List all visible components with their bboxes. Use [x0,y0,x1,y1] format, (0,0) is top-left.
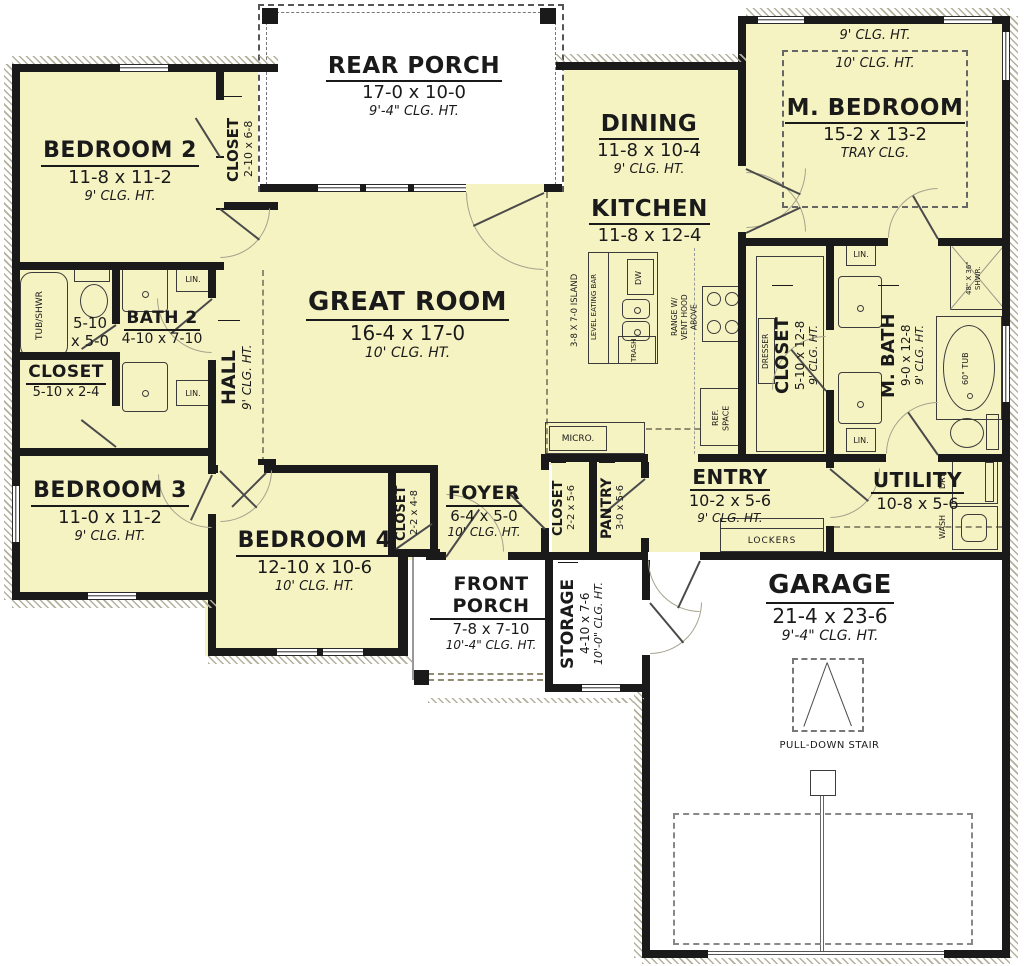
label-m-bedroom: 10' CLG. HT. M. BEDROOM 15-2 x 13-2 TRAY… [782,56,968,162]
window [582,684,620,692]
room-clg: 9' CLG. HT. [913,285,926,425]
room-clg: 9' CLG. HT. [75,529,146,545]
floor-plan: TUB/SHWR LIN. LIN. LEVEL EATING BAR DW 3… [0,0,1024,966]
window [758,16,804,24]
room-dim: 12-10 x 10-6 [257,557,372,579]
island-sink [622,299,650,319]
range-label: RANGE W/VENT HOODABOVE [670,284,700,350]
door-opening [738,166,746,232]
label-storage: STORAGE 4-10 x 7-6 10'-0" CLG. HT. [558,562,630,684]
toilet [950,418,984,448]
exterior-hatch [556,54,746,62]
room-dim: 10-8 x 5-6 [876,494,958,514]
garage-door-outline [673,813,973,945]
exterior-hatch [4,64,12,600]
room-dim: 15-2 x 13-2 [823,124,927,146]
dishwasher: DW [627,259,654,295]
room-clg: 9'-4" CLG. HT. [369,104,459,120]
room-name: ENTRY [690,465,769,491]
exterior-hatch [746,8,1010,16]
door-opening [641,478,649,538]
room-name: UTILITY [871,468,964,494]
room-dim: 2-10 x 6-8 [242,96,255,202]
label-bath2: BATH 2 4-10 x 7-10 [116,308,208,348]
shower-label: 48" X 36"SHWR. [965,247,991,309]
door-opening [446,552,508,560]
eating-bar-label: LEVEL EATING BAR [590,257,606,357]
room-clg: 9' CLG. HT. [697,511,762,526]
room-name: DINING [599,110,700,140]
lockers-label: LOCKERS [721,530,823,552]
room-dim: 5-10 x 2-4 [33,385,100,401]
mbed-outer-clg: 9' CLG. HT. [800,28,950,43]
label-great-room: GREAT ROOM 16-4 x 17-0 10' CLG. HT. [300,287,515,362]
room-dim: 11-8 x 11-2 [68,167,172,189]
exterior-hatch [12,600,216,608]
label-bedroom2-closet: CLOSET 2-10 x 6-8 [224,96,268,202]
room-clg: 9' CLG. HT. [85,189,156,205]
window [1002,32,1010,80]
room-name: BATH 2 [124,308,199,331]
room-name: CLOSET [26,362,106,385]
front-porch-edge [428,673,553,675]
wc-dim1: 5-10 [73,314,107,332]
window [944,16,992,24]
label-foyer: FOYER 6-4 x 5-0 10' CLG. HT. [434,482,534,540]
room-clg: 9' CLG. HT. [240,320,254,435]
room-name: CLOSET [224,96,242,202]
label-hall: HALL 9' CLG. HT. [218,320,266,435]
window [1002,326,1010,402]
room-clg: 10' CLG. HT. [275,579,354,595]
linen-closet: LIN. [846,428,876,452]
window [120,64,168,72]
room-name: PANTRY [599,462,615,554]
room-name: CLOSET [772,285,793,425]
room-dim: 17-0 x 10-0 [362,82,466,104]
room-dim: 2-2 x 4-8 [409,470,420,555]
room-dim: 11-8 x 10-4 [597,140,701,162]
linen-closet: LIN. [176,380,210,406]
room-clg: 10' CLG. HT. [447,525,520,540]
tub-shower: TUB/SHWR [20,272,68,358]
window-mullion [317,648,323,656]
label-pantry: PANTRY 3-0 x 5-6 [599,462,639,554]
eating-bar: LEVEL EATING BAR [589,253,609,363]
room-name: M. BATH [878,285,899,425]
wall [738,16,746,462]
wc-dim2: x 5-0 [71,332,109,350]
room-name: BEDROOM 4 [236,528,394,557]
room-dim: 3-0 x 5-6 [615,462,626,554]
room-name: GARAGE [766,570,894,604]
window-mullion [360,184,366,192]
window-mullion [408,184,414,192]
toilet-tank [74,268,110,282]
toilet [80,284,108,318]
garage-door-threshold [708,951,944,955]
room-dim: 7-8 x 7-10 [453,620,530,638]
trash-label: TRASH [630,333,644,367]
lin-label: LIN. [853,250,868,259]
ref-label: REF.SPACE [711,393,735,443]
window [318,184,466,192]
master-tub: 60" TUB [936,316,1002,420]
tub-label: 60" TUB [961,341,977,397]
lin-label: LIN. [185,389,200,398]
door-opening [466,184,544,192]
room-name: CLOSET [551,462,566,554]
garage-post [810,770,836,796]
label-foyer-closet: CLOSET 2-2 x 5-6 [551,462,587,554]
room-name: STORAGE [558,562,578,684]
room-name: BEDROOM 3 [31,478,189,507]
label-hall-closet: CLOSET 5-10 x 2-4 [18,362,114,401]
microwave: MICRO. [549,426,607,451]
label-entry: ENTRY 10-2 x 5-6 9' CLG. HT. [655,465,805,526]
wall [944,950,1010,958]
label-kitchen: KITCHEN 11-8 x 12-4 [572,195,727,247]
dishwasher-label: DW [634,264,648,292]
label-garage: GARAGE 21-4 x 23-6 9'-4" CLG. HT. [735,570,925,645]
room-clg: 9' CLG. HT. [614,162,685,178]
exterior-hatch [208,656,412,664]
room-name: BEDROOM 2 [41,138,199,167]
room-dim: 11-0 x 11-2 [58,507,162,529]
room-dim: 4-10 x 7-6 [578,562,592,684]
wall [556,62,746,70]
front-porch-edge [428,679,553,681]
wall [589,454,597,560]
door-opening [826,330,834,390]
lin-label: LIN. [853,436,868,445]
label-bedroom3: BEDROOM 3 11-0 x 11-2 9' CLG. HT. [26,478,194,545]
room-name: REAR PORCH [326,52,502,82]
sink-vanity [838,372,882,424]
sink-vanity [838,276,882,328]
sink-vanity [122,362,168,412]
room-name: FOYER [446,482,522,507]
door-opening [888,238,938,246]
room-name: KITCHEN [589,195,710,225]
room-name: HALL [218,320,240,435]
room-clg: 9' CLG. HT. [807,285,820,425]
cased-opening-line [646,428,700,430]
room-dim: 2-2 x 5-6 [566,462,577,554]
pull-down-stair-label: PULL-DOWN STAIR [762,738,897,752]
room-clg: 10' CLG. HT. [365,345,450,362]
trash-cabinet: TRASH [618,336,656,364]
window [88,592,136,600]
room-clg: 10'-4" CLG. HT. [446,638,537,653]
room-name: CLOSET [394,470,409,555]
label-front-porch: FRONT PORCH 7-8 x 7-10 10'-4" CLG. HT. [430,574,552,653]
door-opening [112,406,120,448]
kitchen-counter-line [694,248,695,454]
room-name: M. BEDROOM [785,94,966,124]
room-clg: 10'-0" CLG. HT. [592,562,605,684]
wall [642,950,708,958]
micro-label: MICRO. [562,434,595,444]
window [12,486,20,542]
room-name: FRONT PORCH [430,574,552,620]
toilet-tank [986,414,999,450]
tub-shower-label: TUB/SHWR [35,279,53,353]
door-opening [216,158,224,208]
room-name: GREAT ROOM [306,287,509,321]
door-opening [648,552,700,560]
label-bedroom2: BEDROOM 2 11-8 x 11-2 9' CLG. HT. [36,138,204,205]
wall [1002,552,1010,958]
room-clg: 10' CLG. HT. [835,56,914,72]
porch-column [414,670,429,685]
wall [12,352,120,360]
label-bath2-wc: 5-10 x 5-0 [64,314,116,351]
label-m-bath: M. BATH 9-0 x 12-8 9' CLG. HT. [878,285,932,425]
room-dim: 6-4 x 5-0 [450,507,517,525]
label-dining: DINING 11-8 x 10-4 9' CLG. HT. [575,110,723,178]
door-opening [541,470,549,528]
room-dim: 16-4 x 17-0 [350,321,465,345]
label-bedroom4: BEDROOM 4 12-10 x 10-6 10' CLG. HT. [222,528,407,595]
door-opening [648,454,698,462]
room-tray: TRAY CLG. [841,146,909,162]
exterior-hatch [642,958,1010,964]
room-dim: 11-8 x 12-4 [598,225,702,247]
ceiling-break-line [546,192,548,454]
door-opening [216,100,224,156]
room-clg: 9'-4" CLG. HT. [782,628,879,645]
room-dim: 5-10 x 12-8 [793,285,807,425]
door-opening [642,600,650,655]
wall [1002,16,1010,560]
porch-post [540,8,556,24]
shower: 48" X 36"SHWR. [950,244,1004,310]
exterior-hatch [1010,16,1018,958]
label-rear-porch: REAR PORCH 17-0 x 10-0 9'-4" CLG. HT. [330,52,498,120]
room-dim: 9-0 x 12-8 [899,285,913,425]
lin-label: LIN. [185,275,200,284]
porch-post [262,8,278,24]
label-m-closet: CLOSET 5-10 x 12-8 9' CLG. HT. [772,285,826,425]
exterior-hatch [12,56,278,64]
room-dim: 21-4 x 23-6 [772,604,887,628]
wall [12,448,216,456]
wall [746,238,1006,246]
room-dim: 4-10 x 7-10 [122,331,203,348]
walkway-edge [428,698,644,703]
door-opening [886,454,938,462]
exterior-hatch [634,692,642,958]
label-utility: UTILITY 10-8 x 5-6 [840,468,995,514]
label-bedroom4-closet: CLOSET 2-2 x 4-8 [394,470,428,555]
island-label: 3-8 X 7-0 ISLAND [570,258,586,362]
room-dim: 10-2 x 5-6 [689,491,771,511]
